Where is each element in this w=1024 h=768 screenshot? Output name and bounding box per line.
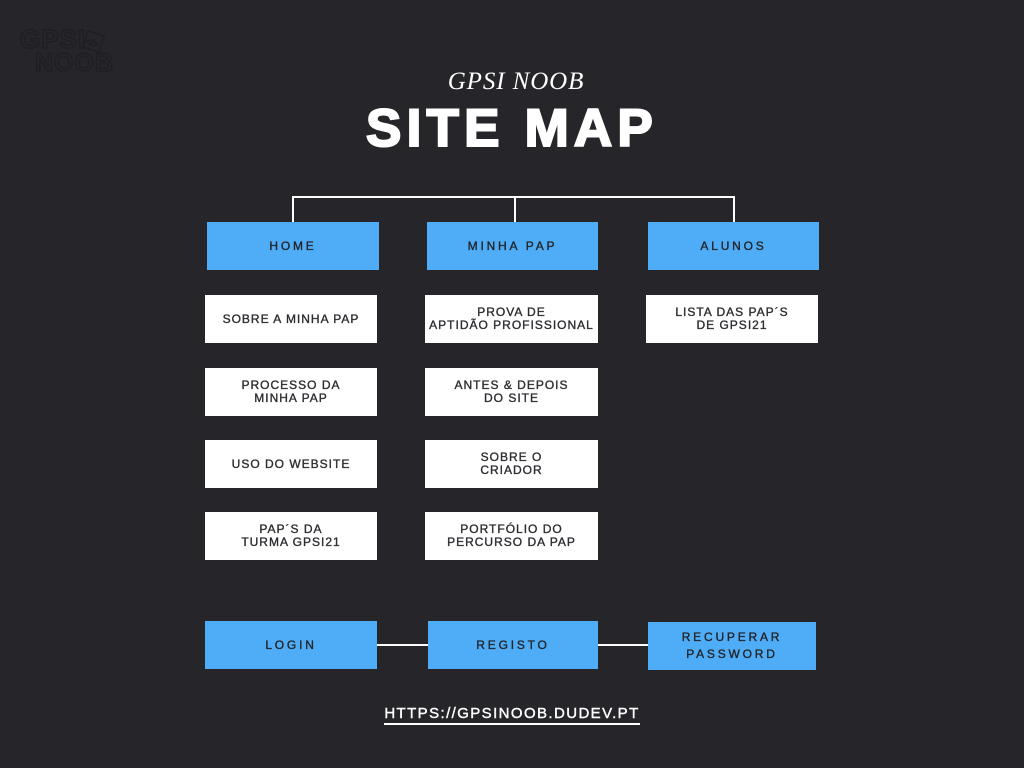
svg-text:</>: </> [84,36,99,50]
